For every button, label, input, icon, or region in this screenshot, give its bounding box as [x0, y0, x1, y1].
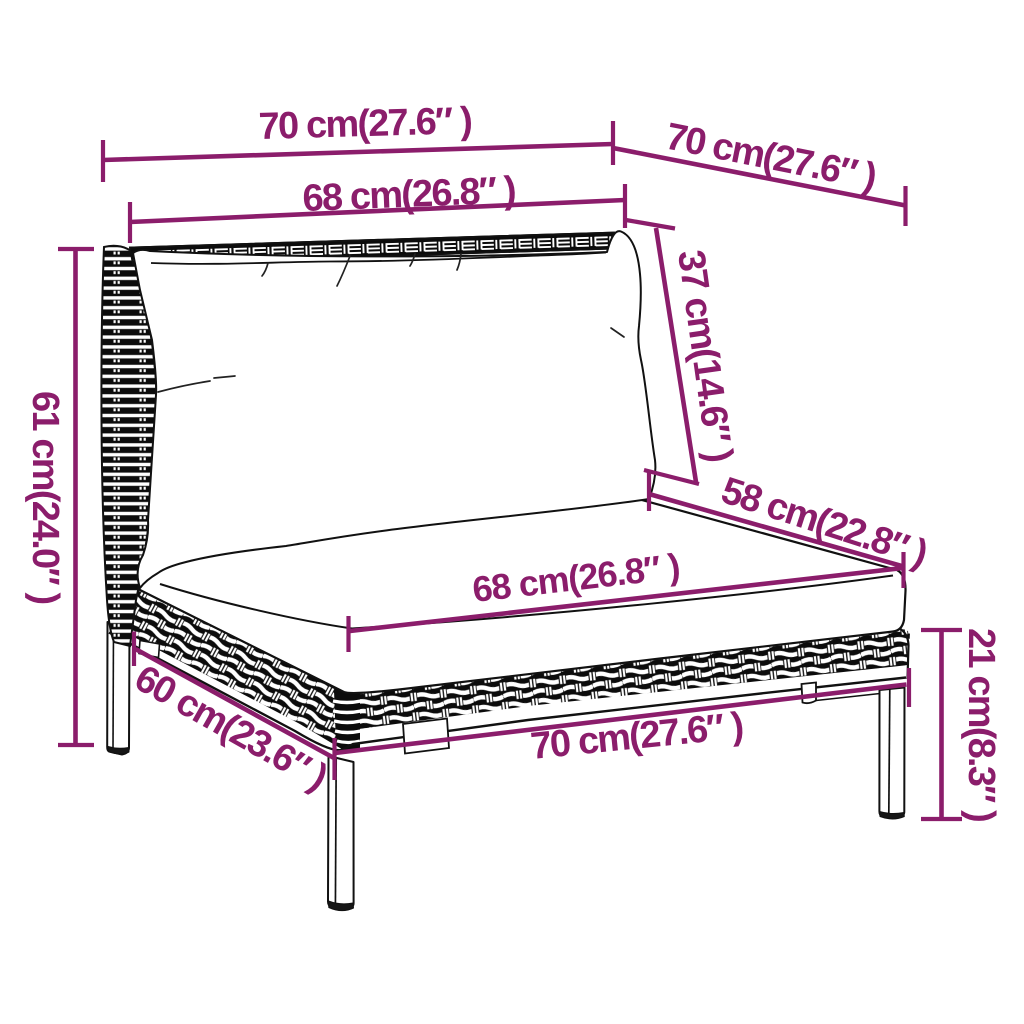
- svg-text:21 cm(8.3″ ): 21 cm(8.3″ ): [960, 628, 1002, 821]
- svg-text:61 cm(24.0″ ): 61 cm(24.0″ ): [24, 391, 66, 604]
- svg-text:70 cm(27.6″ ): 70 cm(27.6″ ): [258, 100, 472, 148]
- svg-text:68 cm(26.8″ ): 68 cm(26.8″ ): [302, 169, 516, 219]
